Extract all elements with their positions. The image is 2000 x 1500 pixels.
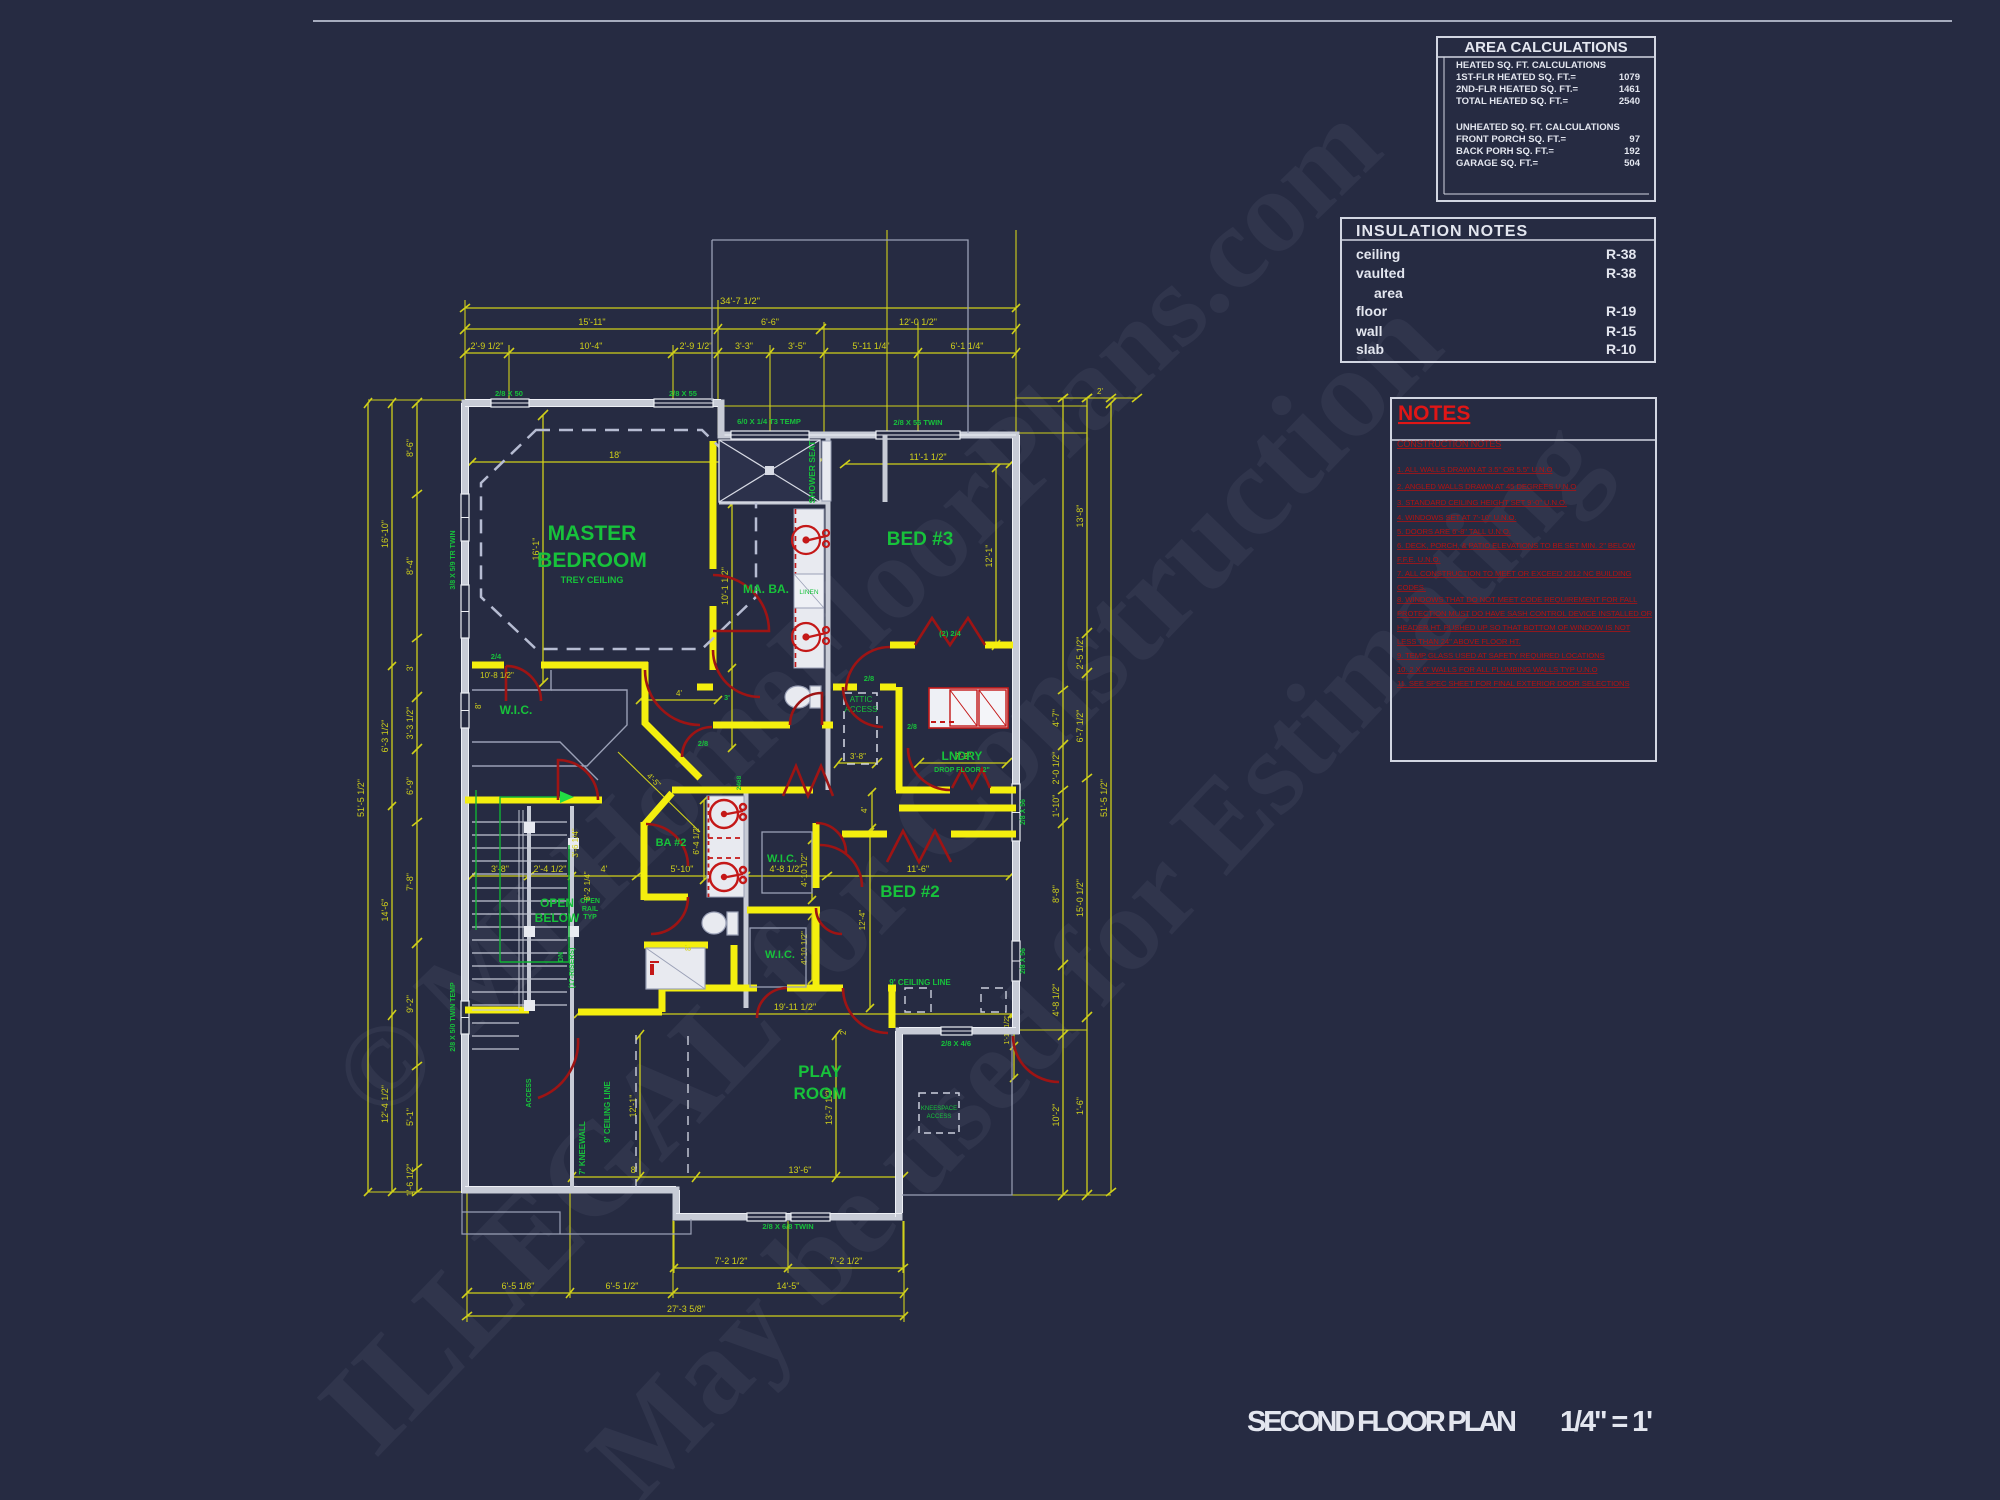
svg-text:KNEESPACE: KNEESPACE xyxy=(921,1106,957,1112)
svg-text:1079: 1079 xyxy=(1619,72,1640,83)
svg-text:12'-4 1/2": 12'-4 1/2" xyxy=(380,1085,390,1123)
svg-text:2'-9 1/2": 2'-9 1/2" xyxy=(471,341,504,351)
svg-text:R-38: R-38 xyxy=(1606,246,1637,262)
svg-text:2/8: 2/8 xyxy=(907,724,917,731)
svg-text:SECOND FLOOR PLAN: SECOND FLOOR PLAN xyxy=(1247,1406,1517,1438)
svg-text:7'-2 1/2": 7'-2 1/2" xyxy=(830,1256,863,1266)
svg-text:(2) 2/4: (2) 2/4 xyxy=(939,629,962,638)
svg-text:15'-0 1/2": 15'-0 1/2" xyxy=(1075,879,1085,917)
svg-text:18': 18' xyxy=(609,450,621,460)
svg-text:W.I.C.: W.I.C. xyxy=(765,949,795,961)
svg-text:19'-11 1/2": 19'-11 1/2" xyxy=(774,1002,816,1012)
svg-text:12'-0 1/2": 12'-0 1/2" xyxy=(899,317,937,327)
svg-text:10'-2": 10'-2" xyxy=(1051,1104,1061,1127)
svg-text:area: area xyxy=(1374,285,1403,301)
svg-text:1'-6 1/2": 1'-6 1/2" xyxy=(405,1164,415,1197)
svg-text:R-10: R-10 xyxy=(1606,341,1637,357)
svg-text:W.I.C.: W.I.C. xyxy=(767,853,797,865)
svg-text:4': 4' xyxy=(860,807,869,813)
svg-text:F.F.E. U.N.O.: F.F.E. U.N.O. xyxy=(1397,555,1441,564)
svg-text:4'-8 1/2": 4'-8 1/2" xyxy=(770,864,803,874)
svg-text:13'-6": 13'-6" xyxy=(789,1165,812,1175)
svg-text:PROTECTION MUST DO HAVE SASH C: PROTECTION MUST DO HAVE SASH CONTROL DEV… xyxy=(1397,609,1653,618)
svg-text:9' CEILING LINE: 9' CEILING LINE xyxy=(603,1081,612,1143)
svg-text:DROP FLOOR 2": DROP FLOOR 2" xyxy=(934,767,990,774)
svg-text:16'-10": 16'-10" xyxy=(380,520,390,548)
svg-text:TOTAL HEATED SQ. FT.=: TOTAL HEATED SQ. FT.= xyxy=(1456,96,1568,107)
svg-text:HEADER HT. PUSHED UP SO THAT B: HEADER HT. PUSHED UP SO THAT BOTTOM OF W… xyxy=(1397,623,1631,632)
svg-text:2/8 X 50: 2/8 X 50 xyxy=(495,389,523,398)
svg-text:BA #2: BA #2 xyxy=(656,837,687,849)
svg-text:INSULATION NOTES: INSULATION NOTES xyxy=(1356,223,1528,240)
svg-text:7. ALL CONSTRUCTION TO MEET O: 7. ALL CONSTRUCTION TO MEET OR EXCEED 20… xyxy=(1397,569,1632,578)
svg-text:3'-8": 3'-8" xyxy=(850,752,866,761)
svg-text:3': 3' xyxy=(724,693,730,702)
svg-text:2540: 2540 xyxy=(1619,96,1640,107)
svg-text:2/8 X 55: 2/8 X 55 xyxy=(669,389,697,398)
svg-text:11'-1 1/2": 11'-1 1/2" xyxy=(909,452,946,462)
svg-text:R-15: R-15 xyxy=(1606,323,1637,339)
svg-text:(17-RISERS): (17-RISERS) xyxy=(569,948,576,989)
svg-text:2'-9 1/2": 2'-9 1/2" xyxy=(680,341,713,351)
svg-text:1ST-FLR HEATED SQ. FT.=: 1ST-FLR HEATED SQ. FT.= xyxy=(1456,72,1576,83)
svg-text:2ND-FLR HEATED SQ. FT.=: 2ND-FLR HEATED SQ. FT.= xyxy=(1456,84,1578,95)
svg-text:FRONT PORCH SQ. FT.=: FRONT PORCH SQ. FT.= xyxy=(1456,134,1567,145)
svg-text:3'-5": 3'-5" xyxy=(788,341,806,351)
svg-text:5'-11 1/4": 5'-11 1/4" xyxy=(852,341,889,351)
svg-text:3'-3": 3'-3" xyxy=(735,341,753,351)
svg-text:8'-8": 8'-8" xyxy=(1051,885,1061,903)
svg-text:GARAGE SQ. FT.=: GARAGE SQ. FT.= xyxy=(1456,158,1539,169)
svg-text:4'-10 1/2": 4'-10 1/2" xyxy=(800,853,809,887)
svg-text:BED #2: BED #2 xyxy=(880,882,940,901)
svg-text:2/8: 2/8 xyxy=(864,674,874,683)
svg-text:1'-10": 1'-10" xyxy=(1051,795,1061,818)
svg-text:BEDROOM: BEDROOM xyxy=(537,549,647,572)
svg-text:34'-7 1/2": 34'-7 1/2" xyxy=(720,296,760,307)
svg-text:PLAY: PLAY xyxy=(798,1062,842,1081)
svg-text:6'-5 1/8": 6'-5 1/8" xyxy=(502,1281,535,1291)
svg-text:3': 3' xyxy=(405,664,415,671)
svg-text:UNHEATED SQ. FT. CALCULATIONS: UNHEATED SQ. FT. CALCULATIONS xyxy=(1456,122,1620,133)
svg-text:R-19: R-19 xyxy=(1606,303,1637,319)
svg-text:51'-5 1/2": 51'-5 1/2" xyxy=(356,779,366,817)
svg-text:8'-2 1/4": 8'-2 1/4" xyxy=(583,871,592,900)
svg-text:15'-11": 15'-11" xyxy=(578,317,605,327)
svg-text:3'-3 1/2": 3'-3 1/2" xyxy=(405,707,415,740)
svg-text:RAIL: RAIL xyxy=(582,906,599,913)
svg-text:8'-6": 8'-6" xyxy=(405,439,415,457)
svg-text:8': 8' xyxy=(474,703,483,709)
svg-text:6'-5 1/2": 6'-5 1/2" xyxy=(606,1281,639,1291)
svg-text:TREY CEILING: TREY CEILING xyxy=(561,575,624,585)
svg-text:2': 2' xyxy=(839,1029,848,1035)
svg-text:1/4" = 1': 1/4" = 1' xyxy=(1560,1406,1653,1438)
svg-text:2'-0 1/2": 2'-0 1/2" xyxy=(1051,752,1061,785)
svg-text:2/8 X 6/8 TWIN: 2/8 X 6/8 TWIN xyxy=(762,1222,813,1231)
svg-text:floor: floor xyxy=(1356,303,1388,319)
svg-text:LNDRY: LNDRY xyxy=(942,749,983,763)
svg-text:2/8 X 56: 2/8 X 56 xyxy=(1020,799,1027,825)
svg-text:1'-6": 1'-6" xyxy=(1075,1097,1085,1115)
svg-text:7'-2 1/2": 7'-2 1/2" xyxy=(715,1256,748,1266)
svg-text:51'-5 1/2": 51'-5 1/2" xyxy=(1099,779,1109,817)
svg-text:HEATED SQ. FT. CALCULATIONS: HEATED SQ. FT. CALCULATIONS xyxy=(1456,60,1606,71)
svg-text:11'-6": 11'-6" xyxy=(907,864,929,874)
svg-text:4'-10 1/2": 4'-10 1/2" xyxy=(800,931,809,965)
svg-text:4'-8 1/2": 4'-8 1/2" xyxy=(1051,984,1061,1017)
svg-text:MA. BA.: MA. BA. xyxy=(743,582,789,596)
svg-text:CONSTRUCTION NOTES: CONSTRUCTION NOTES xyxy=(1397,439,1501,449)
svg-text:LINEN: LINEN xyxy=(799,589,818,596)
svg-text:10'-8 1/2": 10'-8 1/2" xyxy=(480,671,514,680)
svg-text:6'-9": 6'-9" xyxy=(405,777,415,795)
svg-text:5'-10": 5'-10" xyxy=(671,864,694,874)
svg-text:8. WINDOWS THAT DO NOT MEET CO: 8. WINDOWS THAT DO NOT MEET CODE REQUIRE… xyxy=(1397,595,1638,604)
svg-text:OPEN: OPEN xyxy=(540,896,574,910)
svg-text:8'-4": 8'-4" xyxy=(405,557,415,575)
svg-text:11. SEE SPEC SHEET FOR FINAL E: 11. SEE SPEC SHEET FOR FINAL EXTERIOR DO… xyxy=(1397,679,1630,688)
svg-text:ceiling: ceiling xyxy=(1356,246,1400,262)
svg-text:14'-6": 14'-6" xyxy=(380,899,390,922)
svg-text:97: 97 xyxy=(1629,134,1640,145)
svg-text:27'-3 5/8": 27'-3 5/8" xyxy=(667,1304,705,1314)
svg-text:wall: wall xyxy=(1355,323,1382,339)
svg-text:192: 192 xyxy=(1624,146,1640,157)
svg-text:TYP: TYP xyxy=(583,914,597,921)
svg-text:13'-8": 13'-8" xyxy=(1075,505,1085,528)
svg-text:BACK PORH SQ. FT.=: BACK PORH SQ. FT.= xyxy=(1456,146,1554,157)
svg-text:2'-4 1/2": 2'-4 1/2" xyxy=(534,864,567,874)
svg-text:14'-5": 14'-5" xyxy=(777,1281,800,1291)
svg-text:ROOM: ROOM xyxy=(794,1084,847,1103)
svg-text:1461: 1461 xyxy=(1619,84,1641,95)
svg-text:10. 2 X 6" WALLS FOR ALL PLUMB: 10. 2 X 6" WALLS FOR ALL PLUMBING WALLS … xyxy=(1397,665,1598,674)
svg-text:2468: 2468 xyxy=(736,775,743,790)
svg-text:2/8 X 56: 2/8 X 56 xyxy=(1020,948,1027,974)
svg-text:W.I.C.: W.I.C. xyxy=(500,703,533,717)
svg-text:4'-7": 4'-7" xyxy=(1051,709,1061,727)
svg-text:6/0 X 1/4 T3 TEMP: 6/0 X 1/4 T3 TEMP xyxy=(737,417,801,426)
svg-text:BED #3: BED #3 xyxy=(887,529,954,550)
svg-text:CODES.: CODES. xyxy=(1397,583,1426,592)
svg-text:3/8 X 5/9 TR TWIN: 3/8 X 5/9 TR TWIN xyxy=(450,530,457,589)
svg-text:5'-1": 5'-1" xyxy=(405,1108,415,1126)
svg-text:6'-1 1/4": 6'-1 1/4" xyxy=(951,341,984,351)
svg-text:NOTES: NOTES xyxy=(1398,402,1470,425)
svg-text:2. ANGLED WALLS DRAWN AT 45 D: 2. ANGLED WALLS DRAWN AT 45 DEGREES U.N.… xyxy=(1397,482,1576,491)
svg-text:7' KNEEWALL: 7' KNEEWALL xyxy=(578,1121,587,1175)
svg-text:9' CEILING LINE: 9' CEILING LINE xyxy=(889,978,951,987)
svg-text:2/8 X 5/0 TWIN TEMP: 2/8 X 5/0 TWIN TEMP xyxy=(450,982,457,1052)
svg-text:6. DECK, PORCH, & PATIO ELEVA: 6. DECK, PORCH, & PATIO ELEVATIONS TO BE… xyxy=(1397,541,1636,550)
svg-text:3. STANDARD CEILING HEIGHT SE: 3. STANDARD CEILING HEIGHT SET 9'-0" U.N… xyxy=(1397,498,1567,507)
svg-text:10'-4": 10'-4" xyxy=(580,341,603,351)
svg-text:12'-1": 12'-1" xyxy=(984,545,994,568)
svg-text:DN: DN xyxy=(558,952,565,962)
svg-text:MASTER: MASTER xyxy=(548,522,637,545)
svg-text:R-38: R-38 xyxy=(1606,265,1637,281)
svg-text:slab: slab xyxy=(1356,341,1384,357)
svg-text:3'-6 1/4": 3'-6 1/4" xyxy=(571,828,580,857)
svg-text:6'-6": 6'-6" xyxy=(761,317,779,327)
svg-text:6'-3 1/2": 6'-3 1/2" xyxy=(380,720,390,753)
svg-text:2'-5 1/2": 2'-5 1/2" xyxy=(1075,637,1085,670)
svg-text:2/8: 2/8 xyxy=(698,739,708,748)
svg-text:SHOWER SEAT: SHOWER SEAT xyxy=(807,440,817,503)
svg-text:9. TEMP GLASS USED AT SAFETY R: 9. TEMP GLASS USED AT SAFETY REQUIRED LO… xyxy=(1397,651,1605,660)
svg-text:ACCESS: ACCESS xyxy=(526,1078,533,1108)
svg-text:9'-2": 9'-2" xyxy=(405,995,415,1013)
svg-text:2/8 X 56 TWIN: 2/8 X 56 TWIN xyxy=(893,418,942,427)
svg-text:4': 4' xyxy=(676,689,682,698)
svg-text:LESS THAN 24" ABOVE FLOOR HT.: LESS THAN 24" ABOVE FLOOR HT. xyxy=(1397,637,1521,646)
svg-text:ACCESS: ACCESS xyxy=(927,1114,952,1120)
svg-text:vaulted: vaulted xyxy=(1356,265,1405,281)
svg-text:7'-8": 7'-8" xyxy=(405,873,415,891)
svg-text:2': 2' xyxy=(1097,387,1103,396)
svg-text:4. WINDOWS SET AT 7'-10" U.N.: 4. WINDOWS SET AT 7'-10" U.N.O. xyxy=(1397,513,1516,522)
svg-text:5. DOORS ARE 6'-8" TALL U.N.O: 5. DOORS ARE 6'-8" TALL U.N.O. xyxy=(1397,527,1511,536)
svg-text:ATTIC: ATTIC xyxy=(850,695,873,704)
svg-text:4': 4' xyxy=(601,864,608,874)
svg-text:1. ALL WALLS DRAWN AT 3.5" OR: 1. ALL WALLS DRAWN AT 3.5" OR 5.5" U.N.O xyxy=(1397,465,1553,474)
svg-text:504: 504 xyxy=(1624,158,1641,169)
svg-text:2/4: 2/4 xyxy=(491,652,502,661)
svg-text:8': 8' xyxy=(684,945,693,951)
svg-text:AREA CALCULATIONS: AREA CALCULATIONS xyxy=(1464,39,1627,56)
svg-text:6'-7 1/2": 6'-7 1/2" xyxy=(1075,710,1085,743)
svg-text:BELOW: BELOW xyxy=(535,911,580,925)
svg-text:6'-4 1/2": 6'-4 1/2" xyxy=(692,825,701,854)
svg-text:10'-1 1/2": 10'-1 1/2" xyxy=(720,567,730,605)
svg-text:12'-4": 12'-4" xyxy=(858,910,867,931)
svg-text:2/8 X 4/6: 2/8 X 4/6 xyxy=(941,1039,971,1048)
